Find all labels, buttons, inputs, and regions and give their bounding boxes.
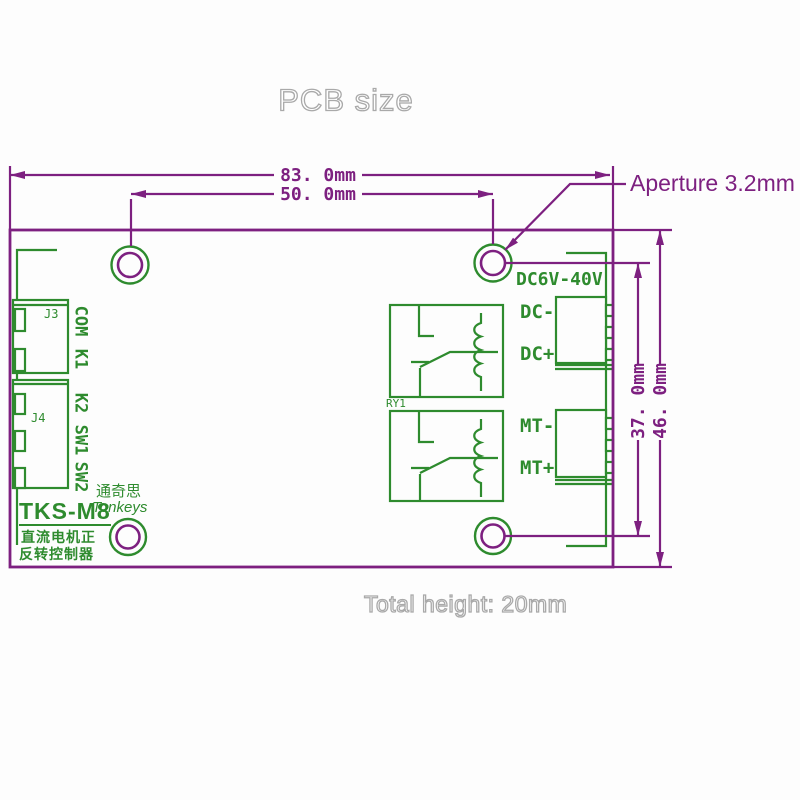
connector-label-com: COM: [72, 306, 89, 337]
aperture-label: Aperture 3.2mm: [630, 172, 795, 195]
dim-height-holes: 37. 0mm: [630, 363, 648, 439]
terminal-label-mt-plus: MT+: [520, 459, 554, 478]
total-height-note: Total height: 20mm: [364, 593, 567, 616]
page-title: PCB size: [278, 85, 413, 116]
connector-label-sw2: SW2: [72, 462, 89, 493]
connector-label-k2: K2: [72, 393, 89, 413]
connector-j4: [13, 380, 68, 488]
terminal-label-mt-minus: MT-: [520, 417, 554, 436]
j4-refdes: J4: [31, 412, 45, 424]
connector-label-sw1: SW1: [72, 425, 89, 456]
aperture-leader: [505, 184, 626, 250]
board-desc-line1: 直流电机正: [21, 530, 96, 544]
terminal-label-dc-plus: DC+: [520, 345, 554, 364]
connector-label-k1: K1: [72, 349, 89, 369]
voltage-label: DC6V-40V: [516, 271, 603, 289]
terminal-block-dc: [555, 297, 613, 369]
board-desc-line2: 反转控制器: [19, 547, 94, 561]
relay-refdes: RY1: [386, 398, 406, 409]
dim-height-outer: 46. 0mm: [652, 363, 670, 439]
brand-name-cn: 通奇思: [96, 484, 141, 499]
mounting-hole-rings: [110, 245, 512, 556]
terminal-block-mt: [555, 410, 613, 484]
j3-refdes: J3: [44, 308, 58, 320]
dim-width-holes: 50. 0mm: [280, 186, 356, 204]
connector-j3: [13, 300, 68, 373]
relay-symbol-2: [390, 411, 503, 501]
terminal-label-dc-minus: DC-: [520, 303, 554, 322]
model-number: TKS-M8: [19, 500, 111, 526]
relay-symbol-1: [390, 305, 503, 397]
dim-width-outer: 83. 0mm: [280, 167, 356, 185]
pcb-dimension-diagram: PCB size 83. 0mm 50. 0mm Aperture 3.2mm …: [0, 0, 800, 800]
mounting-hole-apertures: [117, 251, 506, 549]
